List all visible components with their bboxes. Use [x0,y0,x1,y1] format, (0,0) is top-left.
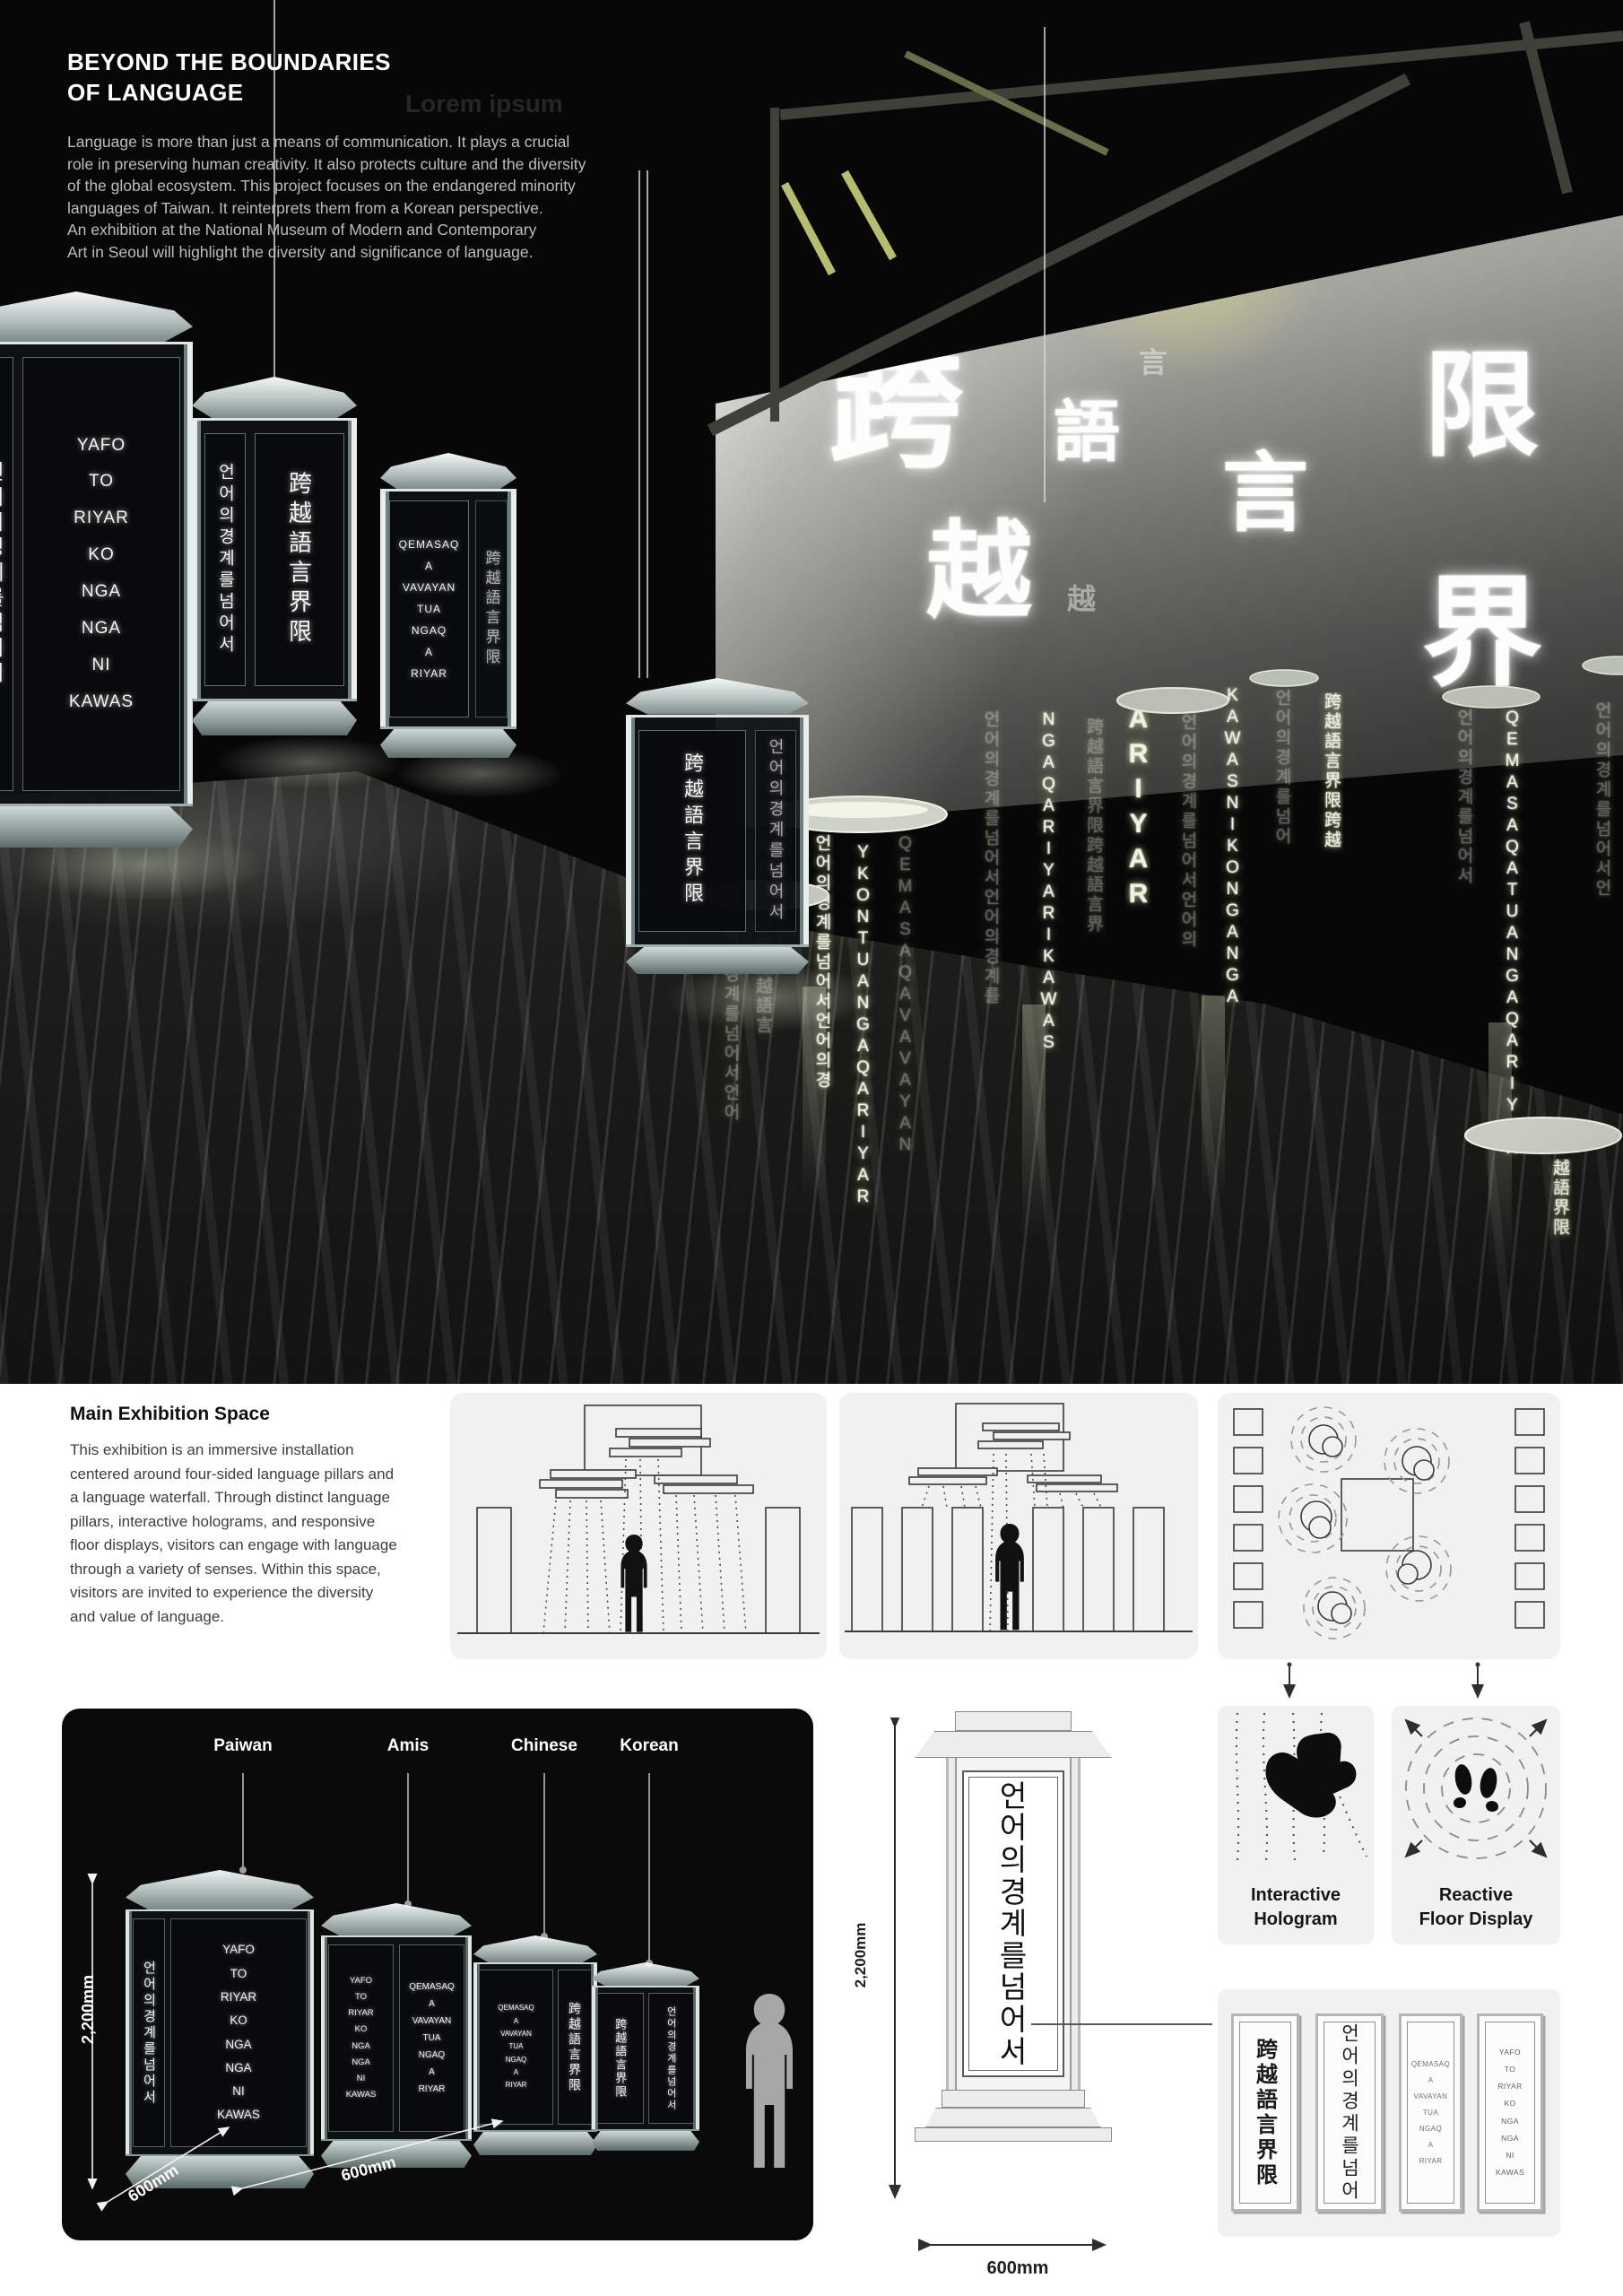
plaque-text: YAFO TO RIYAR KO NGA NGA NI KAWAS [1496,2044,1524,2181]
person-silhouette [621,1535,647,1632]
pillar-face-korean: 언어의경계를넘어서 [204,433,246,686]
hero-render: 跨 語 言 越 限 界 言 越 [0,0,1623,1384]
plan-pillar-squares [1234,1409,1544,1628]
pillar-face-chinese: 跨越語言界限 [255,433,344,686]
lineup-annotation-layer [62,1709,813,2240]
pillar-face-amis: YAFO TO RIYAR KO NGA NGA NI KAWAS [22,357,180,791]
pillar-shaft: 언어의경계를넘어서 YAFO TO RIYAR KO NGA NGA NI KA… [0,342,193,806]
poster-title-line2: OF LANGUAGE [67,77,391,108]
footprints-icon [1392,1706,1560,1876]
pillar-shaft: 언어의경계를넘어서 跨越語言界限 [192,418,357,701]
plaque-frame: 跨越語言界限 [1239,2022,1291,2204]
feature-label-line1: Reactive [1392,1883,1560,1908]
elevation-b-drawing [839,1393,1198,1659]
pillar-label-chinese: Chinese [490,1736,598,1756]
feature-label-line2: Floor Display [1392,1908,1560,1932]
pillar-face-chinese: 跨越語言界限 [475,500,508,717]
presentation-board: 跨 語 言 越 限 界 言 越 [0,0,1623,2296]
language-pillar: QEMASAQ A VAVAYAN TUA NGAQ A RIYAR 跨越語言界… [380,453,516,758]
section-heading: Main Exhibition Space [70,1404,270,1425]
label-leader-lines [239,1773,653,1967]
floor-plan-diagram [1218,1393,1560,1659]
language-pillar: 언어의경계를넘어서 跨越語言界限 [192,377,357,735]
poster-title: BEYOND THE BOUNDARIES OF LANGUAGE [67,47,391,108]
hand-icon [1218,1706,1374,1876]
leader-line [1031,2023,1212,2025]
language-pillar: 언어의경계를넘어서 YAFO TO RIYAR KO NGA NGA NI KA… [0,291,193,848]
outward-arrows [1406,1720,1546,1857]
face-plaque-chinese: 跨越語言界限 [1231,2013,1299,2212]
floor-plan-drawing [1218,1393,1560,1659]
floating-discs [703,657,1623,1153]
pillar-base [380,729,516,758]
pillar-face-korean: 언어의경계를넘어서 [0,357,13,791]
feature-label: Interactive Hologram [1218,1883,1374,1932]
intro-paragraph: Language is more than just a means of co… [67,131,586,263]
pillar-cap [192,377,357,418]
plaque-text: QEMASAQ A VAVAYAN TUA NGAQ A RIYAR [1411,2057,1450,2170]
pillar-cap [626,678,809,715]
dimension-label-height: 2,200mm [852,1915,870,1996]
pillar-label-paiwan: Paiwan [189,1736,297,1756]
face-plaque-korean: 언어의경계를넘어 [1315,2013,1384,2212]
face-plaque-amis: YAFO TO RIYAR KO NGA NGA NI KAWAS [1477,2013,1543,2212]
section-paragraph: This exhibition is an immersive installa… [70,1439,397,1629]
pillar-face-korean: 언어의경계를넘어서 [755,730,796,932]
person-silhouette [995,1524,1024,1630]
truss-brace-yellow [845,172,893,258]
language-pillar: 跨越語言界限 언어의경계를넘어서 [626,678,809,974]
interactive-hologram-card: Interactive Hologram [1218,1706,1374,1944]
plan-to-cards-arrows [1273,1661,1506,1706]
pillar-cap [380,453,516,489]
pillar-base [0,806,193,848]
detail-dimension-arrows [861,1718,1130,2274]
plaque-text: 언어의경계를넘어 [1336,2023,1363,2203]
watermark-text: Lorem ipsum [405,90,563,118]
plaque-frame: QEMASAQ A VAVAYAN TUA NGAQ A RIYAR [1407,2022,1454,2204]
elevation-diagram-a [450,1393,827,1659]
pillar-shaft: QEMASAQ A VAVAYAN TUA NGAQ A RIYAR 跨越語言界… [380,489,516,729]
pillar-face-paiwan: QEMASAQ A VAVAYAN TUA NGAQ A RIYAR [389,500,469,717]
plaque-frame: 언어의경계를넘어 [1324,2022,1376,2204]
footprints [1453,1763,1499,1813]
feature-label-line2: Hologram [1218,1908,1374,1932]
scale-figure [746,1994,793,2168]
pillar-label-amis: Amis [354,1736,462,1756]
feature-label: Reactive Floor Display [1392,1883,1560,1932]
truss-brace-yellow [785,184,832,274]
pillar-face-chinese: 跨越語言界限 [638,730,746,932]
truss-structure [710,22,1623,430]
pillar-shaft: 跨越語言界限 언어의경계를넘어서 [626,715,809,947]
elevation-diagram-b [839,1393,1198,1659]
pillar-face-plaques-panel: 跨越語言界限 언어의경계를넘어 QEMASAQ A VAVAYAN TUA NG… [1218,1989,1560,2237]
dimension-label-width: 600mm [964,2258,1072,2279]
poster-title-line1: BEYOND THE BOUNDARIES [67,47,391,77]
plaque-text: 跨越語言界限 [1250,2038,1281,2188]
ripple-circles [1406,1718,1546,1858]
dimension-label-height: 2,200mm [79,1975,98,2044]
dimension-arrows [92,1883,502,2202]
plan-visitor-cluster [1279,1407,1451,1639]
reactive-floor-card: Reactive Floor Display [1392,1706,1560,1944]
pillar-cap [0,291,193,342]
pillar-base [626,947,809,974]
pillar-label-korean: Korean [595,1736,703,1756]
face-plaque-paiwan: QEMASAQ A VAVAYAN TUA NGAQ A RIYAR [1399,2013,1462,2212]
plaque-frame: YAFO TO RIYAR KO NGA NGA NI KAWAS [1485,2022,1535,2204]
feature-label-line1: Interactive [1218,1883,1374,1908]
pillar-base [192,701,357,735]
elevation-a-drawing [450,1393,827,1659]
